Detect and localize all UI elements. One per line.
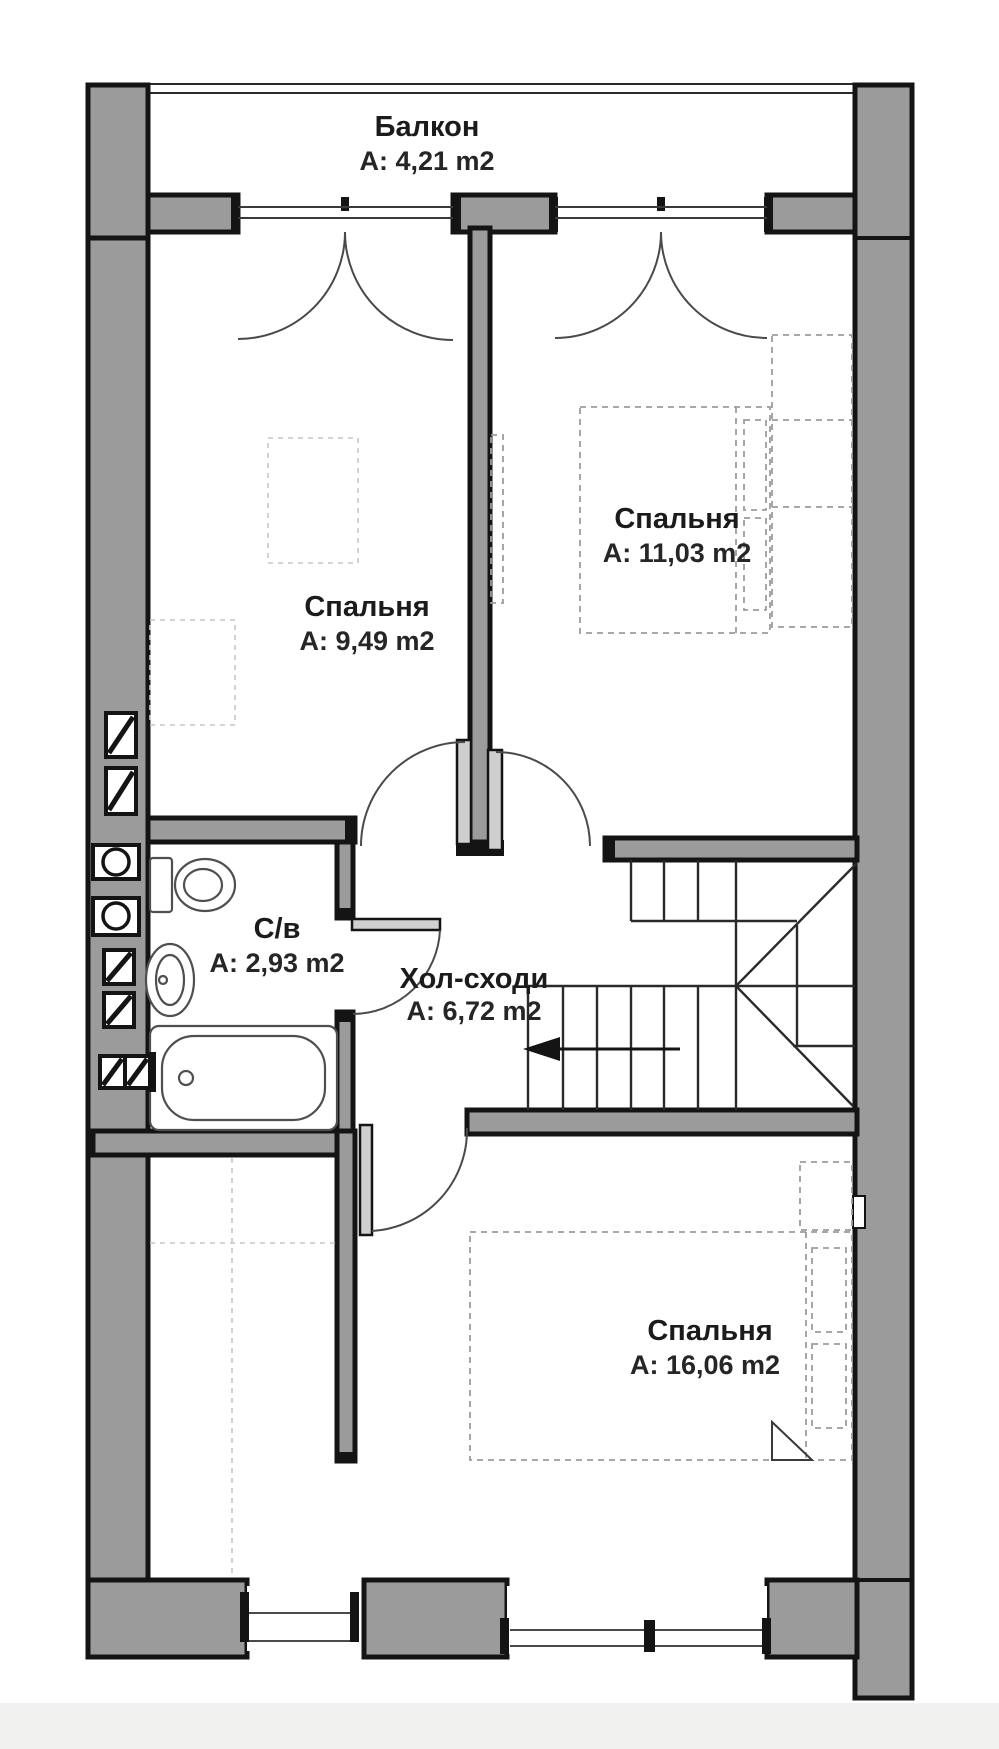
balcony-door1-center-tick [341,197,349,211]
room-label-hall-stairs: Хол-сходи A: 6,72 m2 [400,963,549,1026]
floor-plan-drawing: Балкон A: 4,21 m2 Спальня A: 9,49 m2 Спа… [0,0,999,1749]
wall-bathroom-right-upper [337,842,353,918]
wall-bathroom-bottom [93,1131,355,1155]
bathroom-top-wall-cap [345,818,355,842]
wall-top-segment-c [767,195,855,232]
bathroom-door-jamb-bottom [337,1012,353,1022]
wall-bottom-segment-b [364,1580,507,1657]
lower-wall-cap [337,1452,355,1461]
stairs-wall-cap [605,838,615,860]
balcony-railing [148,84,855,93]
balcony-door2-jamb-right [764,197,773,232]
room-name: С/в [254,913,301,945]
scan-edge-strip [0,1703,999,1749]
room-area: A: 9,49 m2 [299,626,434,656]
window [240,1586,359,1651]
room-name: Спальня [647,1315,772,1347]
room-area: A: 6,72 m2 [406,996,541,1026]
wall-hall-bedroom [467,1110,857,1134]
balcony-door2-center-tick [657,197,665,211]
window [500,1586,771,1654]
room-name: Спальня [304,591,429,623]
door-leaf-bedroom-right [488,750,502,850]
balcony-door1-jamb-left [231,197,240,232]
balcony-door2-jamb-left [549,197,558,232]
room-name: Балкон [375,111,480,143]
wall-bottom-segment-a [88,1580,247,1657]
wall-stairs-top [605,838,857,860]
sink-icon [146,944,194,1016]
floor-plan-page: Балкон A: 4,21 m2 Спальня A: 9,49 m2 Спа… [0,0,999,1749]
bathroom-door-jamb-top [337,908,353,918]
wall-bathroom-top [148,818,355,842]
pillar-top-left [88,85,148,238]
toilet-icon [150,858,235,912]
wall-top-segment-a [148,195,238,232]
room-name: Спальня [614,503,739,535]
wall-right [855,85,912,1698]
right-wall-niche [853,1196,865,1228]
wall-bottom-segment-c [767,1580,857,1657]
bathtub-faucet [148,1052,156,1092]
wall-bathroom-right-lower [337,1012,353,1133]
room-name: Хол-сходи [400,963,549,995]
bathtub-icon [148,1026,337,1130]
door-leaf-bathroom [352,919,440,930]
room-area: A: 4,21 m2 [359,146,494,176]
door-leaf-bedroom-big [360,1125,372,1235]
wall-lower-vertical [337,1131,355,1461]
room-area: A: 16,06 m2 [630,1350,780,1380]
room-area: A: 2,93 m2 [209,948,344,978]
room-area: A: 11,03 m2 [603,538,752,568]
door-leaf-bedroom-left [457,740,471,844]
balcony-door1-jamb-right [452,197,461,232]
